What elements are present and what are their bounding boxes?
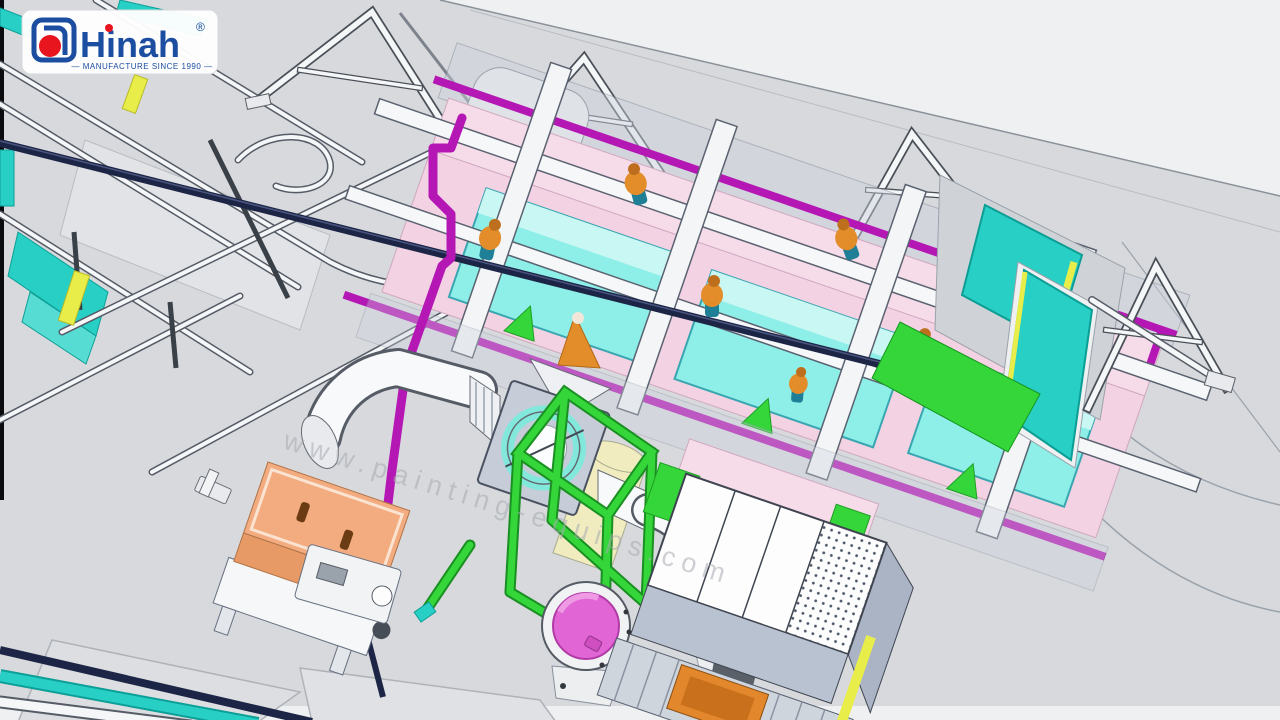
logo-brand-text: Hinah — [80, 24, 180, 65]
logo-tagline: — MANUFACTURE SINCE 1990 — — [71, 62, 212, 71]
plant-3d-scene: www.painting-equips.com Hinah ® — MANUFA… — [0, 0, 1280, 720]
hinah-logo-icon — [34, 20, 74, 60]
left-edge-strip — [0, 0, 4, 500]
logo-registered-mark: ® — [196, 20, 205, 34]
logo-badge: Hinah ® — MANUFACTURE SINCE 1990 — — [22, 10, 218, 74]
teal-strip-left-edge — [0, 150, 14, 206]
logo-i-dot — [105, 24, 113, 32]
plant-3d-render-frame: www.painting-equips.com Hinah ® — MANUFA… — [0, 0, 1280, 720]
